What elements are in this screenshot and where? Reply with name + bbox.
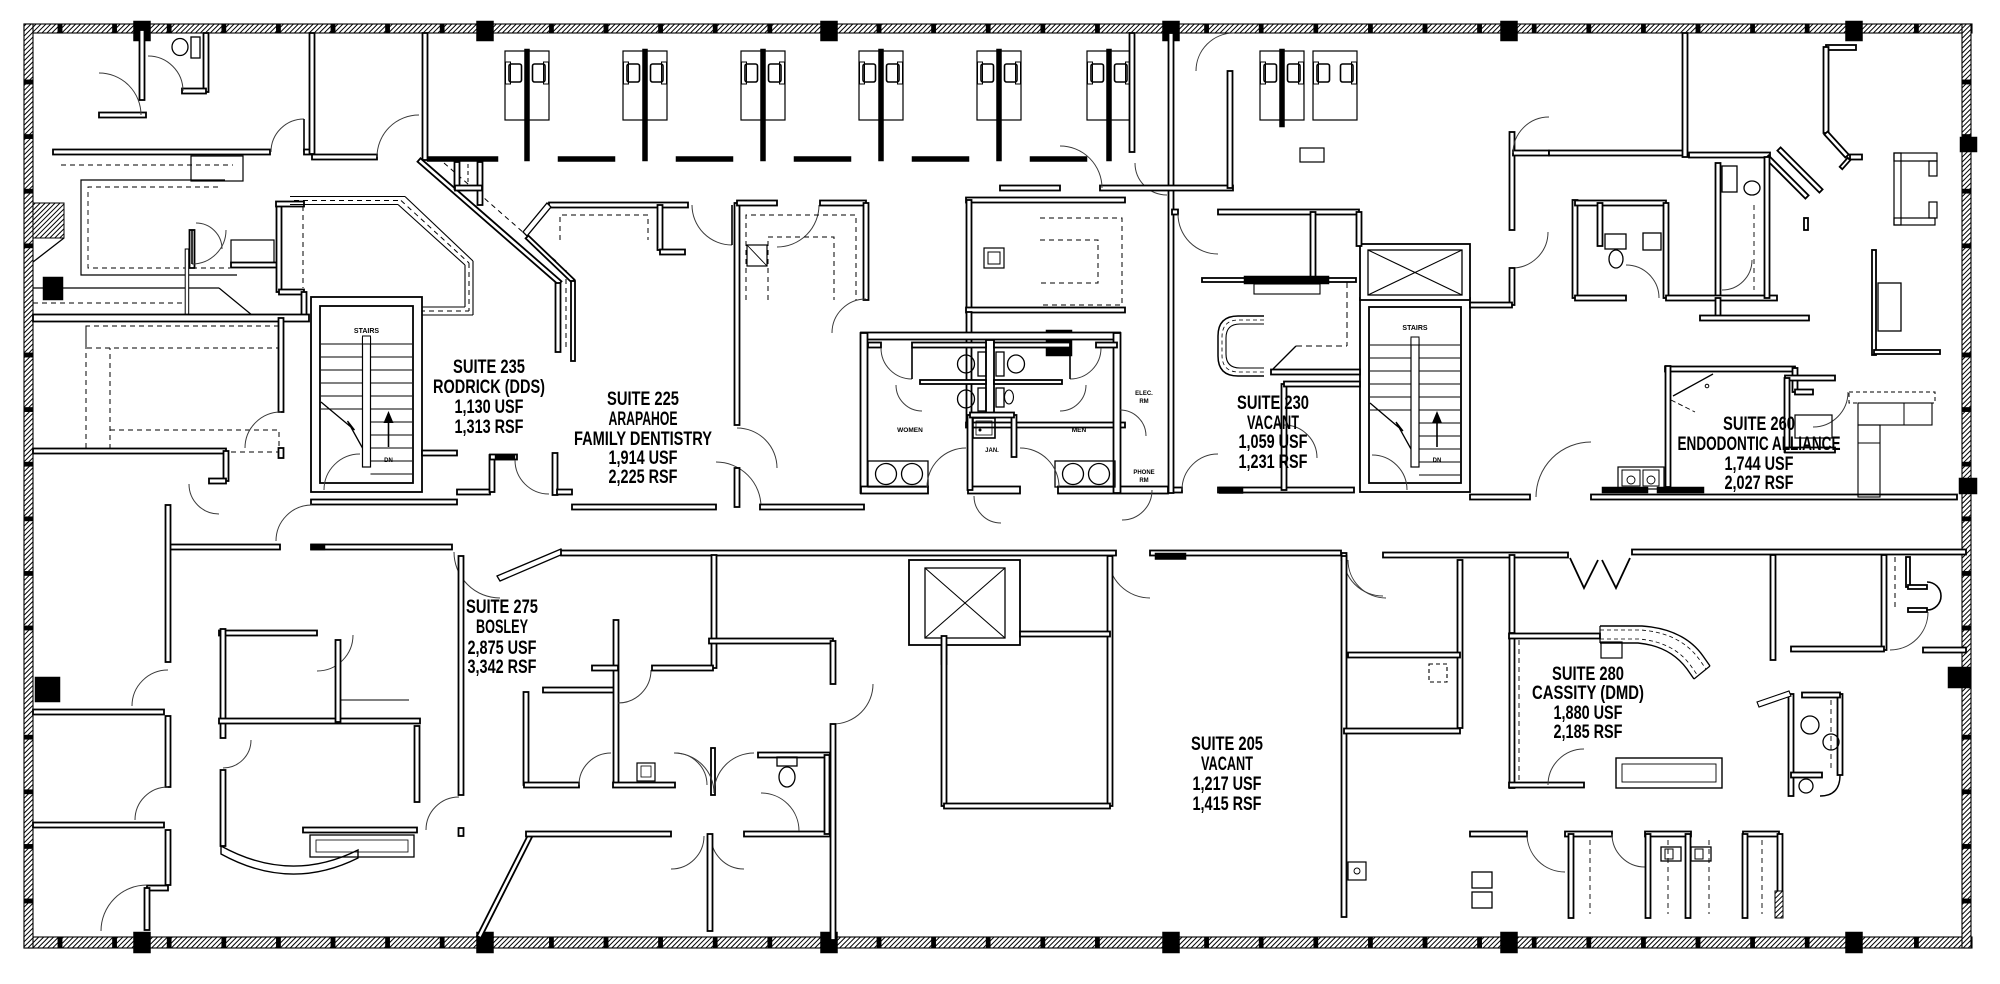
svg-text:RM: RM (1139, 478, 1148, 484)
svg-text:2,027 RSF: 2,027 RSF (1725, 473, 1794, 494)
svg-text:1,313 RSF: 1,313 RSF (455, 417, 524, 438)
svg-text:BOSLEY: BOSLEY (476, 617, 528, 638)
svg-text:1,217 USF: 1,217 USF (1193, 774, 1262, 795)
svg-text:2,185 RSF: 2,185 RSF (1554, 722, 1623, 743)
svg-text:MEN: MEN (1072, 427, 1087, 434)
svg-text:ELEC.: ELEC. (1135, 391, 1153, 397)
svg-text:PHONE: PHONE (1133, 470, 1154, 476)
svg-text:FAMILY DENTISTRY: FAMILY DENTISTRY (574, 429, 712, 450)
svg-text:1,744 USF: 1,744 USF (1725, 454, 1794, 475)
svg-text:SUITE 280: SUITE 280 (1552, 664, 1624, 685)
svg-text:SUITE 260: SUITE 260 (1723, 414, 1795, 435)
svg-text:ENDODONTIC ALLIANCE: ENDODONTIC ALLIANCE (1678, 434, 1841, 455)
svg-text:CASSITY (DMD): CASSITY (DMD) (1532, 683, 1644, 704)
svg-text:1,130 USF: 1,130 USF (455, 397, 524, 418)
svg-text:3,342 RSF: 3,342 RSF (468, 657, 537, 678)
svg-text:RODRICK (DDS): RODRICK (DDS) (433, 377, 545, 398)
svg-text:SUITE 205: SUITE 205 (1191, 734, 1263, 755)
svg-text:VACANT: VACANT (1247, 413, 1299, 434)
svg-text:VACANT: VACANT (1201, 754, 1253, 775)
svg-text:RM: RM (1139, 399, 1148, 405)
svg-text:SUITE 275: SUITE 275 (466, 597, 538, 618)
svg-text:JAN.: JAN. (985, 448, 999, 454)
svg-text:SUITE 230: SUITE 230 (1237, 393, 1309, 414)
svg-text:1,880 USF: 1,880 USF (1554, 703, 1623, 724)
svg-text:SUITE 235: SUITE 235 (453, 357, 525, 378)
svg-text:2,875 USF: 2,875 USF (468, 638, 537, 659)
svg-text:ARAPAHOE: ARAPAHOE (609, 409, 678, 430)
svg-text:DN: DN (384, 458, 393, 464)
svg-text:1,415 RSF: 1,415 RSF (1193, 794, 1262, 815)
svg-text:1,059 USF: 1,059 USF (1239, 432, 1308, 453)
svg-text:SUITE 225: SUITE 225 (607, 389, 679, 410)
svg-text:STAIRS: STAIRS (354, 328, 379, 335)
svg-text:DN: DN (1433, 458, 1442, 464)
svg-text:2,225 RSF: 2,225 RSF (609, 467, 678, 488)
svg-text:1,231 RSF: 1,231 RSF (1239, 452, 1308, 473)
svg-text:WOMEN: WOMEN (897, 427, 923, 434)
svg-text:1,914 USF: 1,914 USF (609, 448, 678, 469)
svg-text:STAIRS: STAIRS (1402, 325, 1427, 332)
